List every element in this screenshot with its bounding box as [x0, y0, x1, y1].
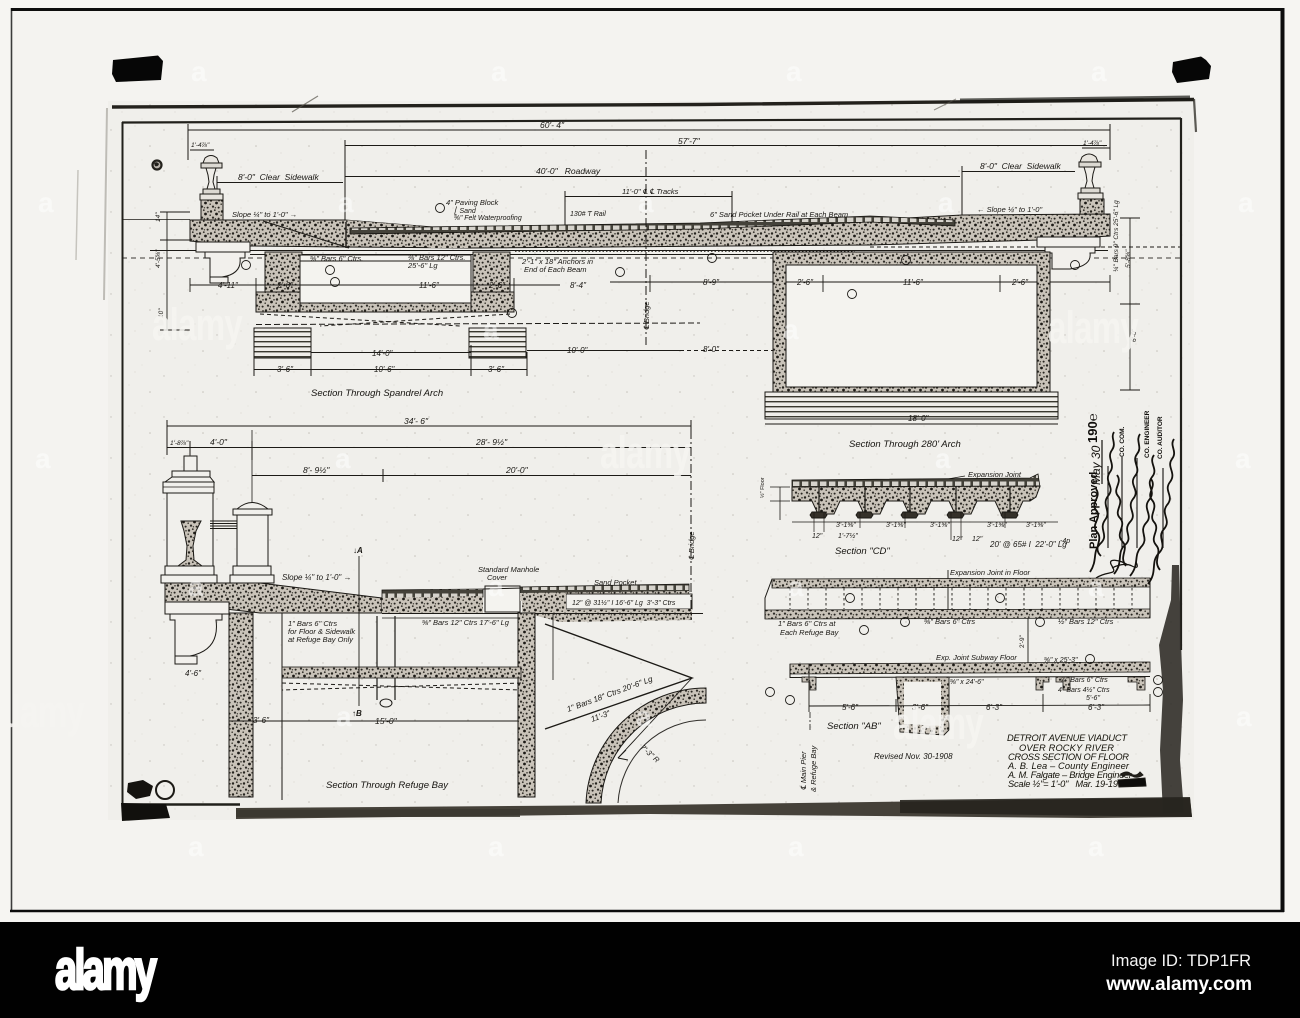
svg-text:8'-0": 8'-0" [703, 345, 720, 354]
svg-text:a: a [188, 831, 204, 862]
svg-text:Scale ½"= 1'-0" Mar. 19-19: Scale ½"= 1'-0" Mar. 19-19 [1008, 779, 1118, 789]
svg-text:5'-8⅝": 5'-8⅝" [1125, 249, 1132, 268]
svg-text:12": 12" [812, 533, 823, 540]
svg-text:℄ Bridge: ℄ Bridge [687, 531, 696, 560]
svg-text:4" Bars 4½" Ctrs: 4" Bars 4½" Ctrs [1058, 686, 1110, 694]
svg-text:4'-6": 4'-6" [185, 669, 202, 678]
svg-text:-4p: -4p [1060, 538, 1070, 545]
svg-text:← Slope ¼" to 1'-0": ← Slope ¼" to 1'-0" [977, 205, 1042, 214]
svg-text:½" Bars 12" Ctrs: ½" Bars 12" Ctrs [1058, 617, 1114, 626]
svg-text:3'-6": 3'-6" [253, 716, 270, 725]
svg-text:½" Floor: ½" Floor [759, 477, 766, 498]
svg-text:60'- 4": 60'- 4" [540, 120, 565, 130]
svg-text:6'-3": 6'-3" [986, 703, 1003, 712]
svg-text:3'-1⅝": 3'-1⅝" [836, 522, 856, 529]
svg-text:alamy: alamy [600, 427, 691, 478]
svg-text:28'- 9½": 28'- 9½" [475, 437, 508, 447]
svg-text:20' @ 65# I 22'-0" Lg: 20' @ 65# I 22'-0" Lg [989, 540, 1067, 549]
svg-text:11'-6": 11'-6" [903, 278, 924, 287]
svg-text:40'-0" Roadway: 40'-0" Roadway [536, 166, 601, 176]
svg-text:2'-6": 2'-6" [1011, 278, 1029, 287]
svg-text:a: a [1091, 56, 1107, 87]
svg-text:3'-1⅝": 3'-1⅝" [1026, 522, 1046, 529]
svg-text:End of Each Beam: End of Each Beam [524, 265, 587, 274]
svg-text:⅞" Bars 6" Ctrs: ⅞" Bars 6" Ctrs [1060, 677, 1108, 684]
svg-text:12": 12" [952, 536, 963, 543]
svg-text:8'-4": 8'-4" [570, 281, 587, 290]
svg-text:⅝" Bars 6" Ctrs: ⅝" Bars 6" Ctrs [924, 617, 975, 626]
svg-text:1" Bars 6" Ctrs at: 1" Bars 6" Ctrs at [778, 619, 836, 628]
svg-text:a: a [488, 571, 504, 602]
svg-text:Expansion Joint in Floor: Expansion Joint in Floor [950, 568, 1031, 577]
svg-text:12": 12" [972, 536, 983, 543]
svg-text:a: a [1088, 571, 1104, 602]
svg-text:8'- 9½": 8'- 9½" [303, 465, 330, 475]
svg-text:⅝" Bars 6" Ctrs.: ⅝" Bars 6" Ctrs. [310, 254, 363, 263]
svg-text:34'- 6": 34'- 6" [404, 416, 429, 426]
svg-text:alamy: alamy [893, 698, 984, 749]
svg-text:⅝" Bars 12" Ctrs 17'-6" Lg: ⅝" Bars 12" Ctrs 17'-6" Lg [422, 618, 510, 627]
svg-text:alamy: alamy [0, 686, 85, 737]
svg-text:May 30: May 30 [1089, 445, 1103, 485]
svg-text:a: a [636, 701, 652, 732]
svg-text:25'-6" Lg: 25'-6" Lg [407, 261, 438, 270]
svg-text:1'-4⅞": 1'-4⅞" [191, 142, 210, 149]
svg-text:a: a [338, 187, 354, 218]
svg-text:4" Paving Block: 4" Paving Block [446, 198, 500, 207]
svg-text:5'-6": 5'-6" [842, 703, 859, 712]
svg-text:a: a [938, 187, 954, 218]
svg-text:at Refuge Bay Only: at Refuge Bay Only [288, 635, 354, 644]
svg-text:1'-8⅞": 1'-8⅞" [170, 440, 189, 447]
svg-text:¼" Bars 9" Ctrs 25'-6" Lg: ¼" Bars 9" Ctrs 25'-6" Lg [1113, 200, 1120, 272]
svg-text:6'-3": 6'-3" [1088, 703, 1105, 712]
svg-text:a: a [788, 571, 804, 602]
svg-text:Slope ¼" to 1'-0" →: Slope ¼" to 1'-0" → [232, 210, 297, 219]
svg-text:a: a [191, 56, 207, 87]
svg-text:3'-1⅝": 3'-1⅝" [886, 522, 906, 529]
svg-text:57'-7": 57'-7" [678, 136, 701, 146]
svg-text:18'-0": 18'-0" [908, 414, 930, 423]
svg-text:1'-7½": 1'-7½" [838, 532, 858, 540]
svg-text:5'-6": 5'-6" [1086, 695, 1100, 702]
svg-text:⅝" x 24'-6": ⅝" x 24'-6" [950, 679, 984, 686]
svg-text:CO. COM.: CO. COM. [1119, 426, 1126, 457]
svg-text:⅝" x 25'-3": ⅝" x 25'-3" [1044, 657, 1078, 664]
svg-text:a: a [1236, 701, 1252, 732]
svg-text:12" @ 31½" I 16'-6" Lg 3'-3": 12" @ 31½" I 16'-6" Lg 3'-3" Ctrs [572, 599, 676, 607]
svg-text:Section "AB": Section "AB" [827, 721, 881, 732]
svg-text:a: a [188, 571, 204, 602]
svg-text:Section "CD": Section "CD" [835, 546, 890, 557]
svg-text:a: a [788, 831, 804, 862]
svg-text:℄ Main Pier: ℄ Main Pier [799, 751, 808, 790]
svg-text:↑B: ↑B [352, 709, 362, 718]
svg-text:20'-0": 20'-0" [505, 465, 529, 475]
svg-text:a: a [1235, 443, 1251, 474]
svg-text:Slope ¼" to 1'-0" →: Slope ¼" to 1'-0" → [282, 573, 351, 582]
svg-text:Exp. Joint Subway Floor: Exp. Joint Subway Floor [936, 653, 1017, 662]
svg-text:Revised Nov. 30-1908: Revised Nov. 30-1908 [874, 752, 953, 761]
svg-text:4'-0": 4'-0" [210, 437, 228, 447]
svg-text:alamy: alamy [152, 299, 243, 350]
svg-text:1'-4⅞": 1'-4⅞" [1083, 140, 1102, 147]
svg-text:Each Refuge Bay: Each Refuge Bay [780, 628, 840, 637]
svg-text:3'-1⅝": 3'-1⅝" [930, 522, 950, 529]
svg-text:⎣ Sand: ⎣ Sand [454, 206, 477, 215]
svg-text:℄ Bridge: ℄ Bridge [642, 301, 651, 330]
svg-text:CO. AUDITOR: CO. AUDITOR [1157, 416, 1164, 459]
svg-text:14'-0": 14'-0" [372, 349, 394, 358]
svg-text:a: a [935, 443, 951, 474]
svg-text:a: a [488, 831, 504, 862]
svg-text:a: a [335, 443, 351, 474]
svg-text:a: a [786, 56, 802, 87]
svg-text:a: a [38, 187, 54, 218]
svg-text:4'-5⅝": 4'-5⅝" [155, 249, 162, 268]
svg-text:Expansion Joint: Expansion Joint [968, 470, 1022, 479]
svg-text:a: a [336, 701, 352, 732]
svg-text:Sand Pocket: Sand Pocket [594, 578, 637, 587]
svg-text:DETROIT AVENUE VIADUCT: DETROIT AVENUE VIADUCT [1007, 733, 1128, 743]
svg-text:alamy: alamy [1048, 302, 1139, 353]
svg-text:a: a [1238, 187, 1254, 218]
svg-text:Section Through Refuge Bay: Section Through Refuge Bay [326, 780, 449, 791]
svg-text:8'-0" Clear Sidewalk: 8'-0" Clear Sidewalk [980, 161, 1061, 171]
svg-text:a: a [1088, 831, 1104, 862]
svg-text:2'-6": 2'-6" [796, 278, 814, 287]
svg-text:a: a [638, 187, 654, 218]
svg-text:a: a [35, 443, 51, 474]
svg-text:8'-0" Clear Sidewalk: 8'-0" Clear Sidewalk [238, 172, 319, 182]
svg-text:a: a [783, 314, 799, 345]
svg-text:3'-1⅝": 3'-1⅝" [987, 522, 1007, 529]
svg-text:⅝" Felt Waterproofing: ⅝" Felt Waterproofing [454, 215, 522, 222]
svg-text:CO. ENGINEER: CO. ENGINEER [1144, 410, 1151, 458]
svg-text:Section Through Spandrel Arch: Section Through Spandrel Arch [311, 388, 443, 399]
svg-text:190℮: 190℮ [1085, 413, 1100, 443]
svg-text:& Refuge Bay: & Refuge Bay [809, 744, 818, 792]
svg-text:2'-9": 2'-9" [1019, 634, 1026, 648]
svg-text:a: a [491, 56, 507, 87]
svg-text:a: a [483, 314, 499, 345]
svg-text:↓A: ↓A [353, 546, 363, 555]
svg-text:130# T Rail: 130# T Rail [570, 211, 606, 218]
svg-text:14": 14" [155, 212, 162, 222]
